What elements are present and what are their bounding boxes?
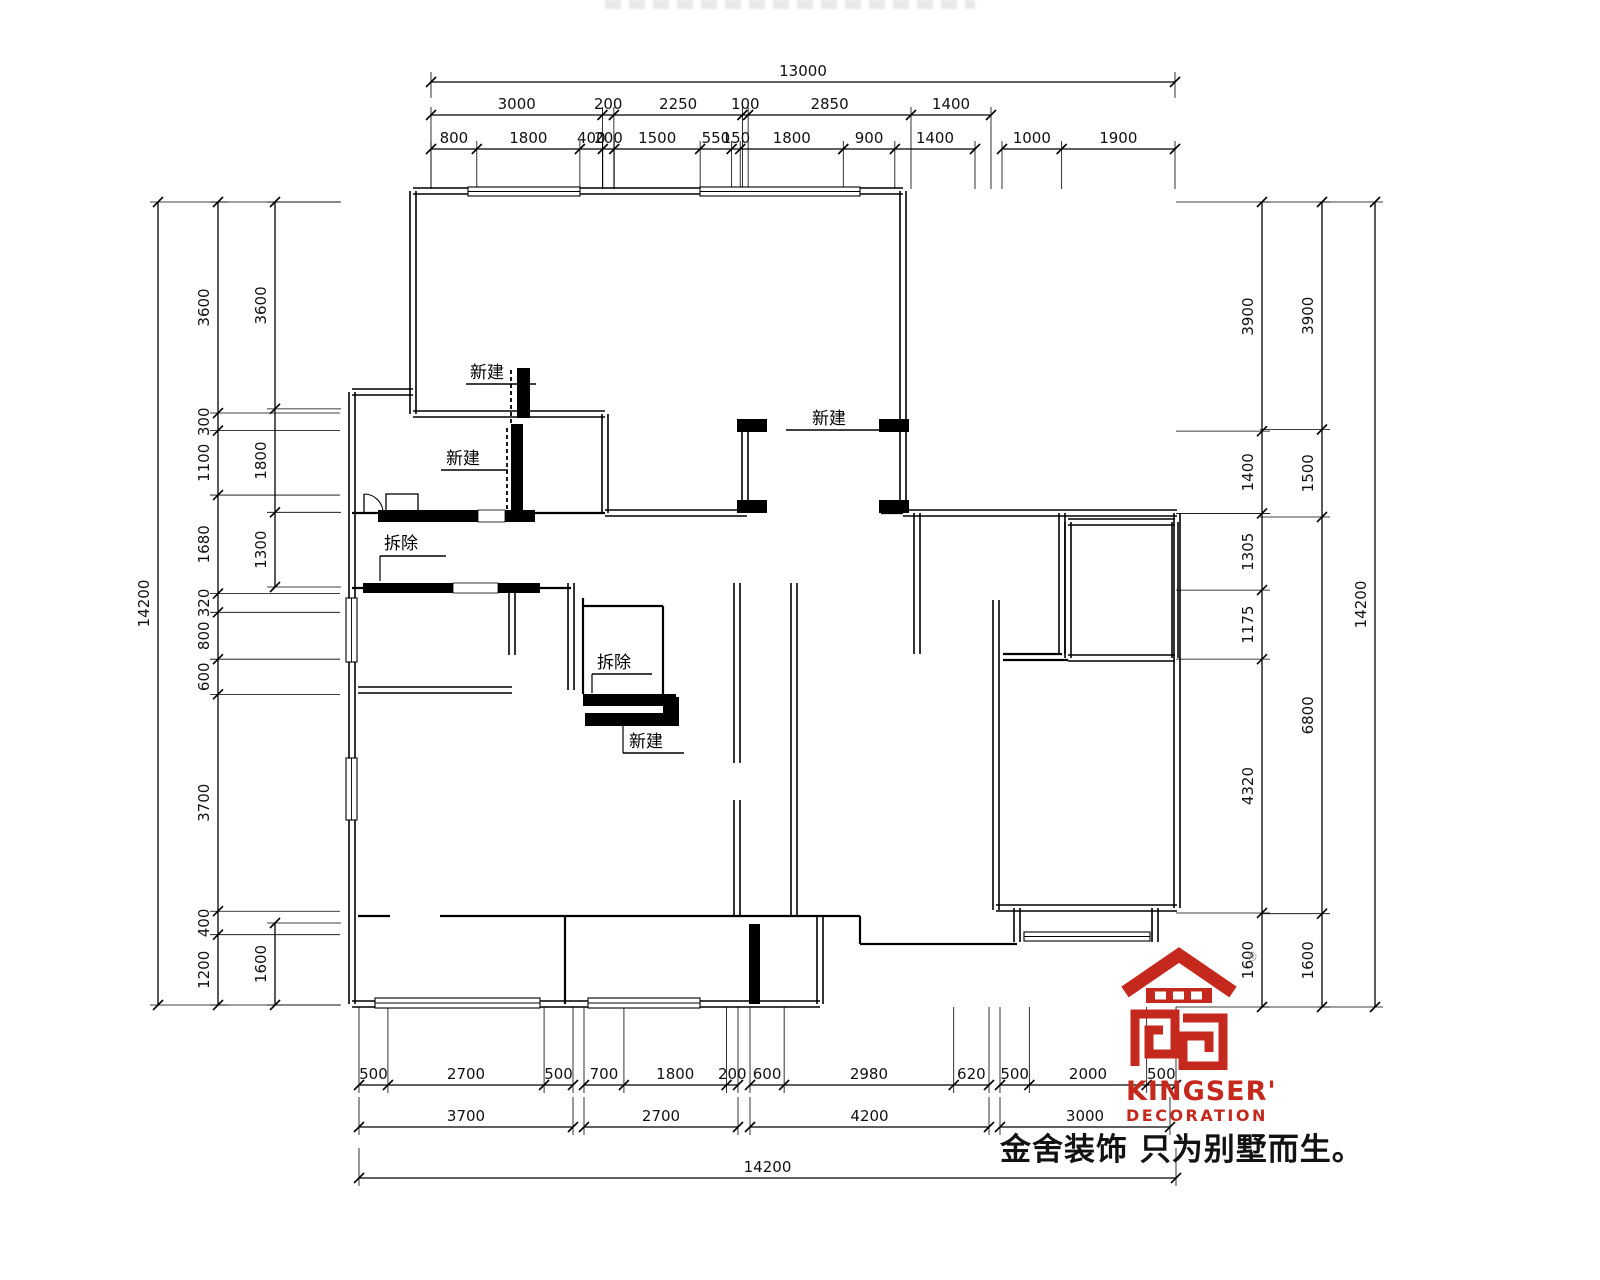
new-wall [517, 368, 530, 418]
dimension-label: 800 [195, 621, 213, 650]
dimension-label: 200 [594, 95, 623, 113]
dimension-label: 300 [195, 407, 213, 436]
dimension-label: 3600 [252, 286, 270, 324]
new-wall [498, 583, 540, 593]
registered-mark: ® [1246, 950, 1258, 964]
new-wall [879, 500, 909, 513]
dimension-label: 1200 [195, 951, 213, 989]
dimension-label: 1800 [773, 129, 811, 147]
dimension-label: 14200 [1352, 581, 1370, 629]
dimension-chain-bot-r1c: 6002980620 [745, 1007, 994, 1093]
dimension-label: 1500 [638, 129, 676, 147]
dimension-label: 1400 [916, 129, 954, 147]
dimension-chain-bot-r1b: 7001800200 [579, 1007, 747, 1093]
dimension-label: 1400 [1239, 453, 1257, 491]
new-wall [505, 510, 535, 522]
annotation-label: 拆除 [384, 534, 418, 554]
dimension-label: 1680 [195, 525, 213, 563]
new-wall [511, 424, 523, 512]
dimension-label: 1800 [656, 1065, 694, 1083]
dimension-label: 1400 [932, 95, 970, 113]
new-wall [363, 583, 453, 593]
dimension-label: 3900 [1239, 297, 1257, 335]
dimension-label: 2000 [1069, 1065, 1107, 1083]
logo-tagline: 金舍装饰 只为别墅而生。 [1000, 1124, 1364, 1169]
dimension-label: 200 [594, 129, 623, 147]
dimension-label: 3700 [195, 784, 213, 822]
dimension-label: 3000 [498, 95, 536, 113]
annotation-label: 新建 [629, 732, 663, 752]
dimension-label: 620 [957, 1065, 986, 1083]
dimension-chain-bot-r2c: 4200 [745, 1097, 994, 1135]
dimension-chain-bot-r1a: 5002700500 [354, 1007, 578, 1093]
dimension-label: 150 [722, 129, 751, 147]
new-walls [363, 368, 909, 1004]
dimension-label: 1600 [252, 945, 270, 983]
dimension-label: 2850 [810, 95, 848, 113]
dimension-label: 500 [544, 1065, 573, 1083]
new-wall [663, 697, 679, 726]
dimension-label: 1100 [195, 444, 213, 482]
dimension-label: 700 [590, 1065, 619, 1083]
annotation-label: 拆除 [597, 653, 631, 673]
dimension-label: 1600 [1299, 941, 1317, 979]
dimension-chain-bot-r2b: 2700 [579, 1097, 743, 1135]
dimension-label: 3600 [195, 288, 213, 326]
logo-sub-text: DECORATION [1126, 1106, 1268, 1125]
dimension-label: 4320 [1239, 767, 1257, 805]
floor-plan-page: 1300030002002250100285014008001800400200… [0, 0, 1600, 1280]
kingser-logo-icon [1118, 946, 1240, 1070]
dimension-label: 400 [195, 909, 213, 938]
furniture [386, 494, 418, 512]
dimension-label: 500 [1000, 1065, 1029, 1083]
dimension-label: 13000 [779, 62, 827, 80]
dimension-chain-left-inner-a: 360018001300 [252, 197, 341, 592]
dimension-label: 500 [359, 1065, 388, 1083]
windows [346, 187, 1150, 1008]
dimension-label: 6800 [1299, 696, 1317, 734]
dimension-label: 600 [753, 1065, 782, 1083]
dimension-label: 2250 [659, 95, 697, 113]
dimension-label: 1175 [1239, 606, 1257, 644]
logo-brand-text: KINGSER' [1126, 1076, 1277, 1107]
dimension-label: 1500 [1299, 454, 1317, 492]
new-wall [737, 500, 767, 513]
floor-plan-svg: 1300030002002250100285014008001800400200… [0, 0, 1600, 1280]
dimension-chain-right-inner: 390014001305117543201600 [1176, 197, 1270, 1012]
dimension-label: 600 [195, 662, 213, 691]
new-wall [737, 419, 767, 432]
dimension-chain-right-mid: 3900150068001600 [1260, 197, 1330, 1012]
dimension-label: 14200 [135, 580, 153, 628]
wall-opening [478, 510, 505, 522]
new-wall [879, 419, 909, 432]
annotation-label: 新建 [470, 363, 504, 383]
dimension-chain-right-total: 14200 [1319, 197, 1383, 1012]
dimension-label: 3900 [1299, 297, 1317, 335]
dimension-chain-left-inner-b: 1600 [252, 918, 341, 1010]
new-wall [749, 924, 760, 1004]
walls [349, 188, 1180, 1007]
dimension-chain-bot-r2a: 3700 [354, 1097, 578, 1135]
new-wall [583, 694, 676, 706]
dimension-chain-left-total: 14200 [135, 197, 228, 1010]
dimension-label: 320 [195, 589, 213, 618]
dimension-label: 1800 [509, 129, 547, 147]
dimension-chain-top-total: 13000 [426, 62, 1180, 98]
dimension-chain-top-row3b: 10001900 [997, 129, 1180, 189]
wall-opening [453, 583, 498, 593]
dimension-label: 1300 [252, 531, 270, 569]
dimension-label: 3700 [447, 1107, 485, 1125]
dimension-label: 2700 [642, 1107, 680, 1125]
dimension-label: 4200 [850, 1107, 888, 1125]
dimension-label: 1000 [1013, 129, 1051, 147]
dimension-label: 14200 [744, 1158, 792, 1176]
dimension-label: 800 [440, 129, 469, 147]
dimension-chain-top-row3: 8001800400200150055015018009001400 [426, 129, 980, 189]
dimension-label: 2700 [447, 1065, 485, 1083]
dimension-label: 1305 [1239, 533, 1257, 571]
dimension-label: 900 [855, 129, 884, 147]
dimension-label: 200 [718, 1065, 747, 1083]
dimension-label: 1900 [1099, 129, 1137, 147]
dimension-label: 3000 [1066, 1107, 1104, 1125]
annotation-label: 新建 [446, 449, 480, 469]
annotation-label: 新建 [812, 409, 846, 429]
dimension-label: 1800 [252, 441, 270, 479]
dimension-label: 100 [731, 95, 760, 113]
dimension-label: 2980 [850, 1065, 888, 1083]
